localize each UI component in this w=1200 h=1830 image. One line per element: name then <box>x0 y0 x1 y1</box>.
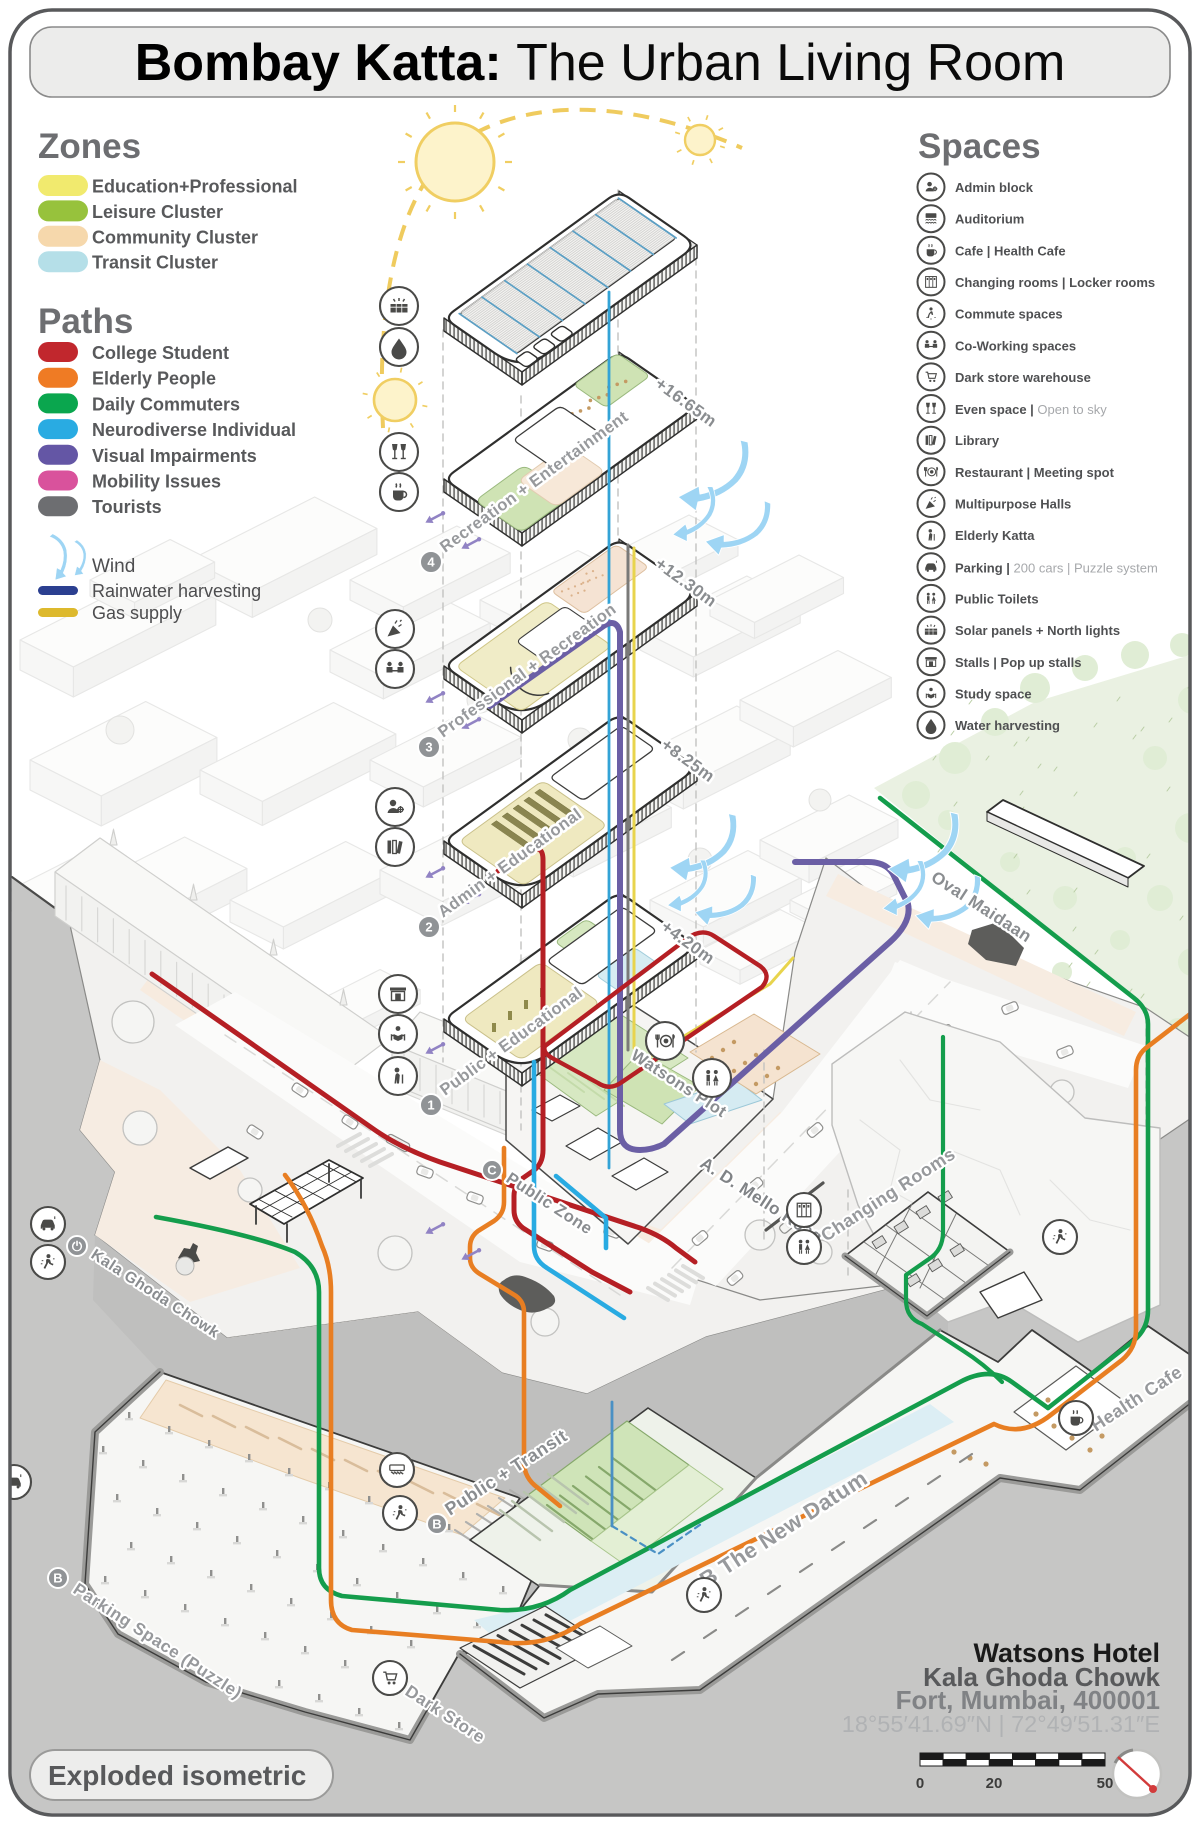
svg-text:Dark store warehouse: Dark store warehouse <box>955 370 1091 385</box>
svg-text:Changing rooms | Locker rooms: Changing rooms | Locker rooms <box>955 275 1155 290</box>
svg-text:Mobility Issues: Mobility Issues <box>92 472 221 492</box>
svg-text:Auditorium: Auditorium <box>955 212 1024 227</box>
svg-text:Public Toilets: Public Toilets <box>955 591 1039 606</box>
svg-text:Study space: Study space <box>955 686 1032 701</box>
svg-text:Elderly Katta: Elderly Katta <box>955 528 1035 543</box>
svg-text:Bombay Katta: The Urban Living: Bombay Katta: The Urban Living Room <box>135 34 1066 92</box>
svg-text:Wind: Wind <box>92 556 135 577</box>
svg-text:⏻: ⏻ <box>72 1239 83 1254</box>
svg-text:Spaces: Spaces <box>918 127 1041 166</box>
svg-text:2: 2 <box>425 920 432 935</box>
svg-text:Multipurpose Halls: Multipurpose Halls <box>955 497 1071 512</box>
svg-text:Neurodiverse Individual: Neurodiverse Individual <box>92 420 296 440</box>
svg-text:Parking | 200 cars | Puzzle sy: Parking | 200 cars | Puzzle system <box>955 560 1158 575</box>
svg-text:Water harvesting: Water harvesting <box>955 718 1060 733</box>
svg-text:Zones: Zones <box>38 127 141 166</box>
svg-text:Co-Working spaces: Co-Working spaces <box>955 338 1076 353</box>
svg-text:Admin block: Admin block <box>955 180 1034 195</box>
svg-text:C: C <box>487 1163 497 1178</box>
svg-text:Exploded isometric: Exploded isometric <box>48 1760 306 1791</box>
svg-text:0: 0 <box>916 1775 924 1792</box>
svg-text:College Student: College Student <box>92 343 229 363</box>
svg-text:Even space | Open to sky: Even space | Open to sky <box>955 402 1107 417</box>
svg-text:Commute spaces: Commute spaces <box>955 307 1063 322</box>
svg-text:Leisure Cluster: Leisure Cluster <box>92 202 223 222</box>
svg-text:3: 3 <box>425 740 432 755</box>
svg-text:Gas supply: Gas supply <box>92 603 182 623</box>
svg-text:Cafe | Health Cafe: Cafe | Health Cafe <box>955 243 1066 258</box>
svg-text:B: B <box>432 1517 441 1532</box>
svg-text:18°55′41.69″N | 72°49′51.31″E: 18°55′41.69″N | 72°49′51.31″E <box>842 1711 1160 1737</box>
svg-text:Transit Cluster: Transit Cluster <box>92 253 218 273</box>
svg-text:20: 20 <box>986 1775 1003 1792</box>
svg-text:Solar panels + North lights: Solar panels + North lights <box>955 623 1120 638</box>
svg-text:4: 4 <box>427 555 435 570</box>
svg-text:Daily Commuters: Daily Commuters <box>92 394 240 414</box>
svg-text:Education+Professional: Education+Professional <box>92 177 298 197</box>
svg-text:Community Cluster: Community Cluster <box>92 227 258 247</box>
svg-text:Restaurant | Meeting spot: Restaurant | Meeting spot <box>955 465 1115 480</box>
svg-text:50: 50 <box>1097 1775 1114 1792</box>
svg-text:Rainwater harvesting: Rainwater harvesting <box>92 581 261 601</box>
svg-text:1: 1 <box>427 1098 434 1113</box>
svg-text:Stalls | Pop up stalls: Stalls | Pop up stalls <box>955 655 1081 670</box>
svg-text:Elderly People: Elderly People <box>92 369 216 389</box>
svg-text:B: B <box>53 1571 62 1586</box>
svg-text:Library: Library <box>955 433 1000 448</box>
svg-text:Tourists: Tourists <box>92 497 162 517</box>
svg-text:Paths: Paths <box>38 302 133 341</box>
svg-text:Visual Impairments: Visual Impairments <box>92 446 257 466</box>
